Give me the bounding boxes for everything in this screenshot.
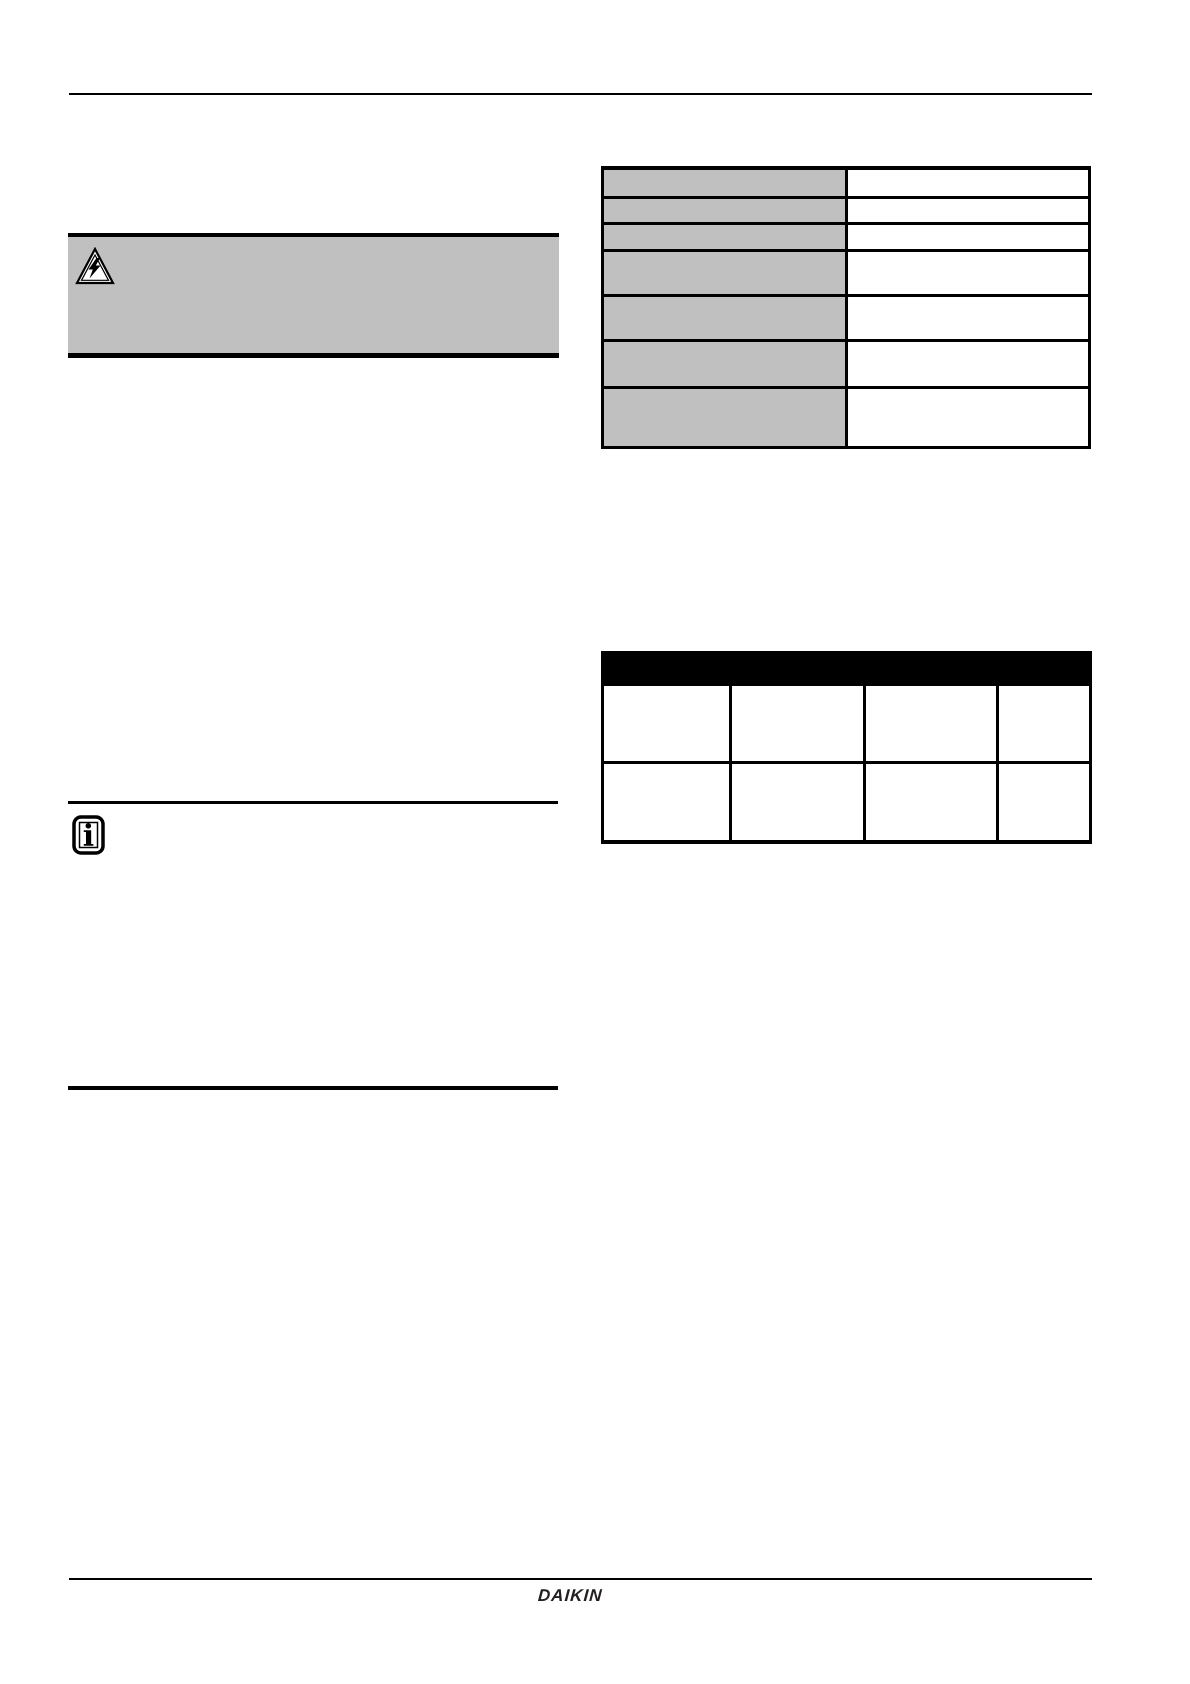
footer-rule — [69, 1578, 1092, 1580]
manual-page: i DAIKIN — [0, 0, 1190, 1684]
daikin-logo: DAIKIN — [537, 1586, 603, 1606]
grid-header-cell — [998, 653, 1091, 685]
spec-label-cell — [603, 387, 847, 447]
grid-cell — [865, 685, 998, 763]
grid-cell — [865, 763, 998, 842]
grid-cell — [998, 685, 1091, 763]
spec-value-cell — [847, 168, 1090, 197]
spec-value-cell — [847, 387, 1090, 447]
spec-label-cell — [603, 223, 847, 250]
spec-label-cell — [603, 340, 847, 387]
spec-table-wrap — [601, 166, 1091, 449]
grid-header-row — [603, 653, 1091, 685]
grid-cell — [731, 685, 865, 763]
spec-label-cell — [603, 197, 847, 223]
spec-table — [601, 166, 1091, 449]
grid-header-cell — [865, 653, 998, 685]
spec-value-cell — [847, 340, 1090, 387]
spec-value-cell — [847, 250, 1090, 295]
electrical-hazard-triangle-icon — [75, 247, 115, 285]
grid-cell — [731, 763, 865, 842]
top-margin-rule — [69, 93, 1092, 95]
table-row — [603, 197, 1090, 223]
grid-cell — [998, 763, 1091, 842]
section-divider-rule — [68, 801, 558, 804]
warning-box — [68, 233, 559, 358]
table-row — [603, 387, 1090, 447]
info-icon: i — [72, 815, 105, 855]
spec-value-cell — [847, 197, 1090, 223]
grid-cell — [603, 763, 731, 842]
table-row — [603, 250, 1090, 295]
grid-table — [601, 651, 1092, 844]
spec-label-cell — [603, 168, 847, 197]
table-row — [603, 223, 1090, 250]
table-row — [603, 685, 1091, 763]
spec-value-cell — [847, 223, 1090, 250]
svg-text:i: i — [83, 819, 94, 854]
table-row — [603, 763, 1091, 842]
spec-value-cell — [847, 295, 1090, 340]
grid-header-cell — [731, 653, 865, 685]
spec-label-cell — [603, 295, 847, 340]
table-row — [603, 340, 1090, 387]
grid-table-wrap — [601, 651, 1092, 844]
grid-cell — [603, 685, 731, 763]
table-row — [603, 168, 1090, 197]
table-row — [603, 295, 1090, 340]
grid-header-cell — [603, 653, 731, 685]
spec-label-cell — [603, 250, 847, 295]
section-divider-rule — [68, 1086, 558, 1090]
